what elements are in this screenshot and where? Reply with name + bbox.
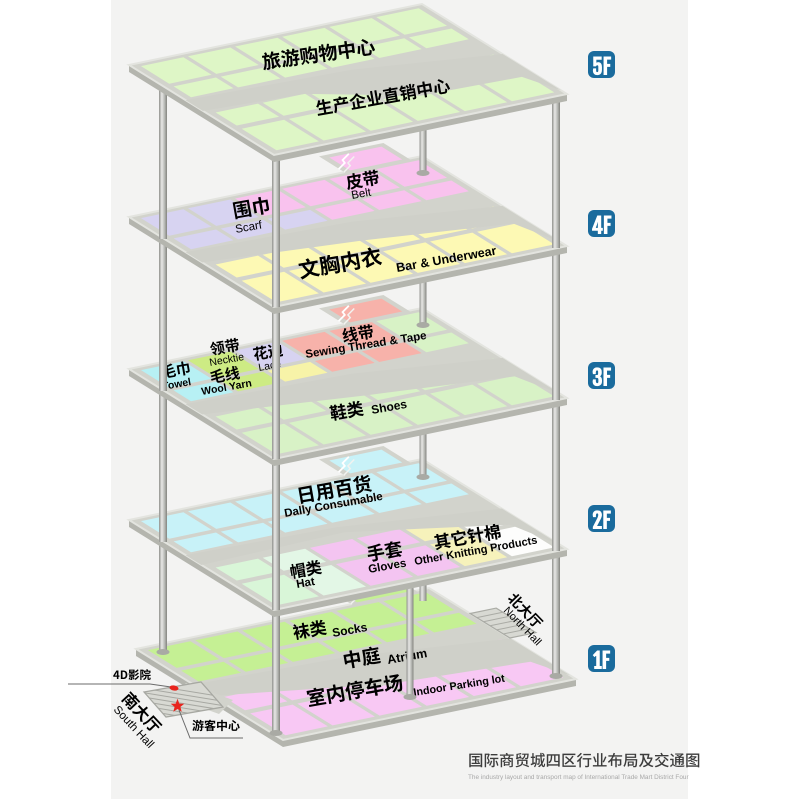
svg-text:The industry layout and transp: The industry layout and transport map of… xyxy=(468,774,689,781)
